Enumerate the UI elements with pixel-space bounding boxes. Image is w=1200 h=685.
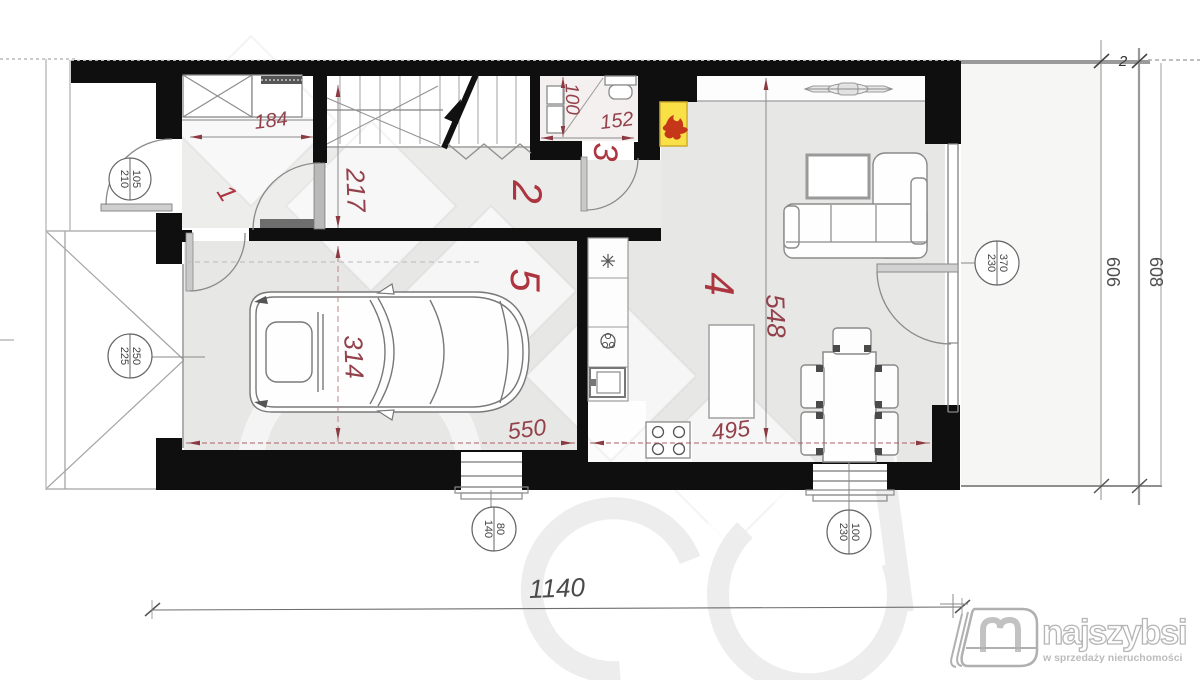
svg-text:230: 230 <box>837 523 849 541</box>
svg-text:4: 4 <box>696 272 743 295</box>
svg-text:105: 105 <box>130 170 142 188</box>
svg-text:370: 370 <box>997 254 1009 272</box>
svg-text:550: 550 <box>506 414 547 445</box>
svg-text:100: 100 <box>849 523 861 541</box>
svg-text:608: 608 <box>1146 257 1166 287</box>
svg-text:2: 2 <box>504 179 551 203</box>
svg-text:1140: 1140 <box>528 572 585 604</box>
svg-text:314: 314 <box>338 335 369 379</box>
svg-text:495: 495 <box>710 415 751 446</box>
svg-text:250: 250 <box>130 347 142 365</box>
svg-text:606: 606 <box>1103 257 1123 287</box>
svg-text:184: 184 <box>253 108 289 134</box>
svg-text:2: 2 <box>1118 53 1128 70</box>
svg-text:225: 225 <box>118 347 130 365</box>
svg-text:230: 230 <box>985 254 997 272</box>
svg-text:210: 210 <box>118 170 130 188</box>
svg-text:najszybsi: najszybsi <box>1042 613 1186 652</box>
svg-text:152: 152 <box>599 108 635 134</box>
svg-text:3: 3 <box>586 143 624 162</box>
svg-text:217: 217 <box>340 167 372 214</box>
svg-text:w sprzedaży nieruchomości: w sprzedaży nieruchomości <box>1042 652 1183 664</box>
svg-text:100: 100 <box>560 83 582 116</box>
svg-text:5: 5 <box>502 268 549 292</box>
svg-text:140: 140 <box>482 520 494 538</box>
svg-text:80: 80 <box>494 523 506 535</box>
svg-text:548: 548 <box>760 294 792 339</box>
